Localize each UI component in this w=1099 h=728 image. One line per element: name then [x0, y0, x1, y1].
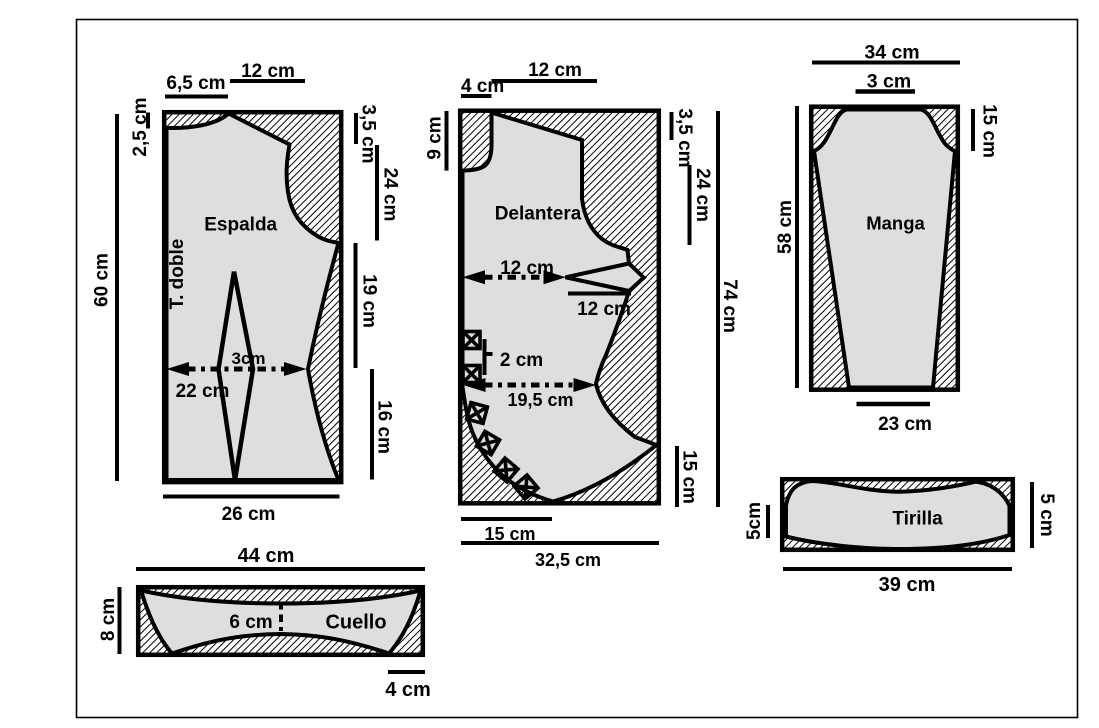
svg-text:5 cm: 5 cm [1036, 493, 1057, 536]
svg-text:6 cm: 6 cm [229, 612, 272, 633]
svg-text:23 cm: 23 cm [878, 414, 932, 435]
svg-text:8 cm: 8 cm [98, 598, 119, 641]
svg-text:34 cm: 34 cm [864, 42, 919, 64]
svg-text:T. doble: T. doble [167, 239, 188, 310]
svg-text:24 cm: 24 cm [380, 168, 401, 222]
svg-text:15 cm: 15 cm [979, 104, 1000, 158]
svg-text:6,5 cm: 6,5 cm [166, 73, 225, 94]
svg-text:12 cm: 12 cm [241, 61, 295, 82]
svg-text:39 cm: 39 cm [879, 574, 936, 596]
svg-text:58 cm: 58 cm [775, 200, 796, 254]
svg-text:Delantera: Delantera [495, 204, 582, 225]
svg-text:5cm: 5cm [744, 502, 765, 540]
svg-text:24 cm: 24 cm [692, 168, 713, 222]
svg-text:4 cm: 4 cm [385, 679, 431, 701]
svg-text:19,5 cm: 19,5 cm [507, 390, 573, 410]
svg-text:74 cm: 74 cm [719, 279, 740, 333]
svg-text:3 cm: 3 cm [867, 71, 911, 93]
svg-text:9 cm: 9 cm [425, 116, 446, 159]
svg-text:60 cm: 60 cm [92, 253, 113, 307]
svg-text:44 cm: 44 cm [238, 545, 295, 567]
svg-text:3,5 cm: 3,5 cm [674, 108, 695, 167]
svg-text:32,5 cm: 32,5 cm [535, 550, 601, 570]
svg-text:12 cm: 12 cm [577, 299, 631, 320]
svg-text:19 cm: 19 cm [359, 274, 380, 328]
svg-text:3cm: 3cm [231, 349, 265, 368]
svg-text:Manga: Manga [866, 213, 925, 234]
svg-text:2 cm: 2 cm [500, 350, 543, 371]
svg-text:12 cm: 12 cm [528, 60, 582, 81]
svg-text:12 cm: 12 cm [500, 258, 554, 279]
svg-text:15 cm: 15 cm [679, 450, 700, 504]
svg-text:26 cm: 26 cm [222, 504, 276, 525]
svg-text:16 cm: 16 cm [374, 400, 395, 454]
svg-text:Cuello: Cuello [325, 612, 386, 634]
svg-text:22 cm: 22 cm [176, 381, 230, 402]
svg-text:Espalda: Espalda [204, 215, 277, 236]
svg-text:Tirilla: Tirilla [892, 509, 943, 530]
